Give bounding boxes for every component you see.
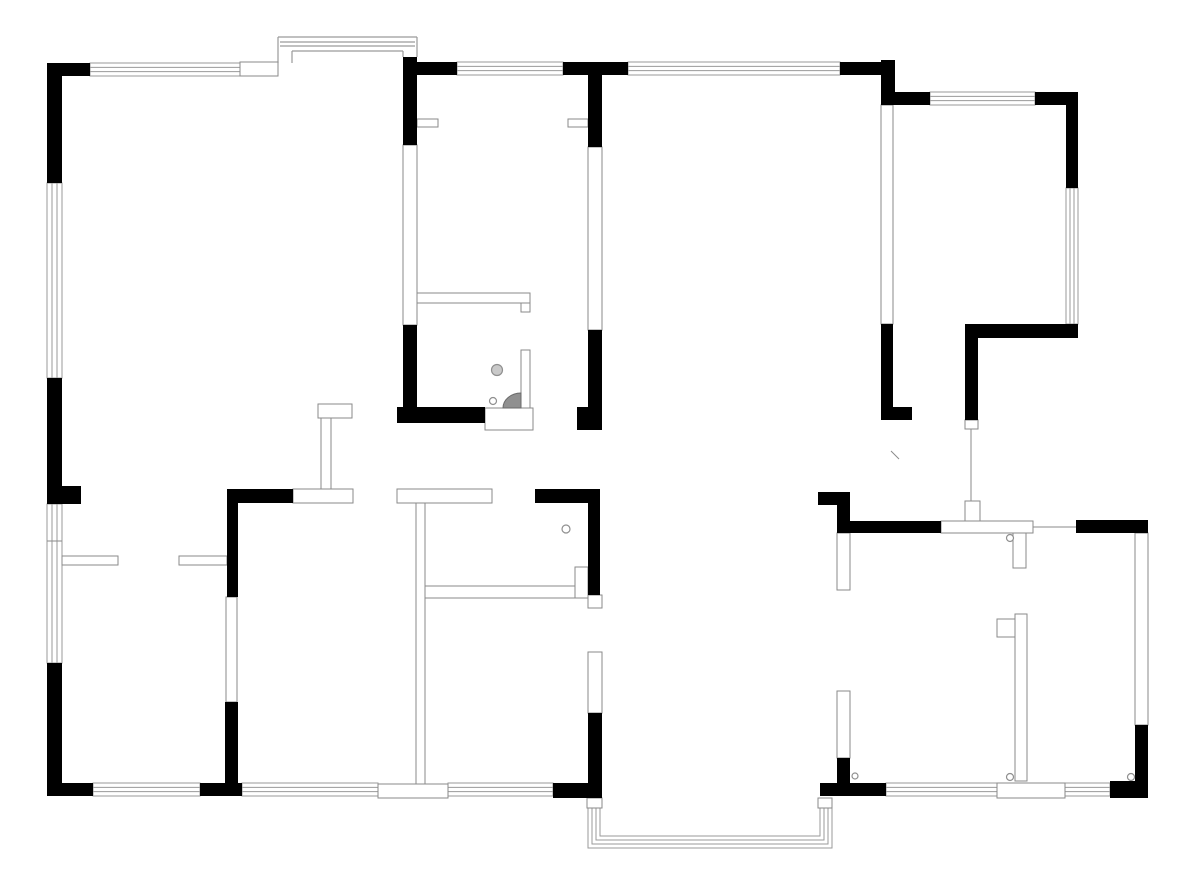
int-wall-left-v-lower bbox=[225, 702, 238, 784]
column-bath-left bbox=[403, 57, 417, 145]
hall-wall-v-lower bbox=[837, 758, 850, 783]
ext-top-wall-seg-d bbox=[895, 92, 930, 105]
wall-mid-tcap bbox=[293, 489, 353, 503]
bedrooms-left-wall bbox=[416, 503, 425, 784]
window-top-b-frame bbox=[457, 62, 563, 75]
window-top-c bbox=[628, 62, 840, 75]
bath-right-wall-mid bbox=[588, 147, 602, 330]
window-bottom-c-frame bbox=[448, 783, 553, 796]
ext-right-wall-lower bbox=[1135, 725, 1148, 785]
ne-door-post-wall bbox=[965, 338, 978, 420]
bath-partition-hook bbox=[521, 303, 530, 312]
window-left-b-frame bbox=[47, 504, 62, 663]
balcony-post-left bbox=[587, 798, 602, 808]
column-bath-right bbox=[588, 75, 602, 147]
window-bottom-c bbox=[448, 783, 553, 796]
ne-room-bottom-wall bbox=[965, 324, 1078, 338]
entry-corner-h bbox=[818, 492, 850, 505]
floor-plan-page bbox=[0, 0, 1200, 886]
thin-partition-walls bbox=[62, 62, 1148, 808]
window-top-c-frame bbox=[628, 62, 840, 75]
entry-door-leaf bbox=[1013, 533, 1026, 568]
kitchen-top-bar bbox=[1076, 520, 1148, 533]
window-bottom-d bbox=[886, 783, 997, 796]
entry-top-bar bbox=[850, 521, 941, 533]
south-balcony-outline bbox=[588, 798, 832, 848]
bath-corner-block bbox=[577, 407, 602, 430]
ext-right-wall-upper bbox=[1066, 105, 1078, 188]
kitchen-wall-hook bbox=[997, 619, 1015, 637]
partition-post-hook bbox=[318, 404, 352, 418]
window-bottom-d-frame bbox=[886, 783, 997, 796]
ext-bottom-seg-b bbox=[820, 783, 886, 796]
entry-corner-v bbox=[837, 505, 850, 533]
hinge-kitchen-a bbox=[1007, 774, 1014, 781]
closet-divider-notch bbox=[575, 567, 588, 598]
bath-drain bbox=[492, 365, 503, 376]
ne-room-left-wall-lower bbox=[881, 324, 893, 420]
window-top-d-frame bbox=[930, 92, 1035, 105]
ext-top-wall-seg-a bbox=[417, 62, 457, 75]
ext-top-wall-seg-c bbox=[840, 62, 882, 75]
window-bottom-b-frame bbox=[242, 783, 378, 796]
bath-bottom-wall bbox=[397, 407, 485, 423]
window-right-ne bbox=[1066, 188, 1078, 324]
int-wall-left-v-upper bbox=[227, 489, 238, 597]
partition-post-v bbox=[321, 418, 331, 489]
int-wall-left-v-mid bbox=[226, 597, 237, 702]
floor-plan-svg bbox=[0, 0, 1200, 886]
ext-left-wall-upper bbox=[47, 63, 62, 183]
window-bottom-a bbox=[93, 783, 200, 796]
window-left-a-frame bbox=[47, 183, 62, 378]
entry-door-post bbox=[965, 501, 980, 521]
window-top-a-frame bbox=[90, 63, 240, 76]
column-top-right bbox=[881, 60, 895, 105]
bath-partition-h bbox=[417, 293, 530, 303]
bath-left-wall-mid bbox=[403, 145, 417, 325]
window-left-b bbox=[47, 504, 62, 663]
pivot-box-ne bbox=[965, 420, 978, 429]
bath-threshold bbox=[485, 408, 533, 430]
kitchen-wall-v bbox=[1015, 614, 1027, 781]
ext-top-wall-seg-b bbox=[563, 62, 628, 75]
bath-door-leaf bbox=[521, 350, 530, 408]
balcony-line-4 bbox=[600, 798, 820, 836]
entry-door-hinge bbox=[1007, 535, 1014, 542]
ne-room-left-wall-upper bbox=[881, 105, 893, 324]
closet-door-hinge bbox=[562, 525, 570, 533]
closet-divider bbox=[425, 586, 577, 598]
ext-top-corner-ne bbox=[1035, 92, 1078, 105]
window-right-ne-frame bbox=[1066, 188, 1078, 324]
wall-left-room-divider bbox=[62, 556, 118, 565]
ext-left-wall-lower bbox=[47, 663, 62, 795]
north-bay-window bbox=[278, 37, 417, 63]
int-wall-mid-v bbox=[588, 489, 600, 595]
window-bottom-a-frame bbox=[93, 783, 200, 796]
bedroom-door-panel bbox=[588, 652, 602, 713]
opening-stub-right bbox=[568, 119, 588, 127]
hinge-hall bbox=[852, 773, 858, 779]
ext-left-wall-nub bbox=[62, 486, 81, 504]
ext-left-wall-mid bbox=[47, 378, 62, 504]
ext-right-window-wall bbox=[1135, 533, 1148, 725]
bath-hinge bbox=[490, 398, 497, 405]
door-swing-tick bbox=[891, 451, 899, 459]
ext-bottom-seg-a bbox=[200, 783, 242, 796]
wall-mid-white-bar bbox=[397, 489, 492, 503]
window-top-a bbox=[90, 63, 240, 76]
ext-bottom-corner-sw bbox=[47, 783, 93, 796]
hall-wall-v-upper bbox=[837, 533, 850, 590]
opening-stub-left bbox=[417, 119, 438, 127]
balcony-post-right bbox=[818, 798, 832, 808]
balcony-line-3 bbox=[596, 798, 824, 840]
window-bottom-e bbox=[1065, 783, 1110, 796]
pivot-box-mid bbox=[588, 595, 602, 608]
window-bottom-b bbox=[242, 783, 378, 796]
balcony-line-2 bbox=[592, 798, 828, 844]
shower-wedge bbox=[503, 393, 521, 408]
hinge-kitchen-b bbox=[1128, 774, 1135, 781]
hall-wall-v-mid bbox=[837, 691, 850, 758]
window-top-b bbox=[457, 62, 563, 75]
bottom-wall-tbox bbox=[378, 784, 448, 798]
threshold-se bbox=[997, 783, 1065, 798]
bath-right-wall-lower bbox=[588, 330, 602, 410]
entry-door-band bbox=[941, 521, 1033, 533]
wall-left-room-stub bbox=[179, 556, 227, 565]
window-top-d bbox=[930, 92, 1035, 105]
window-bottom-e-frame bbox=[1065, 783, 1110, 796]
bedroom-wall-v-lower bbox=[588, 713, 602, 798]
step-wall-top bbox=[240, 62, 278, 76]
ne-room-wall-foot bbox=[893, 407, 912, 420]
window-left-a bbox=[47, 183, 62, 378]
